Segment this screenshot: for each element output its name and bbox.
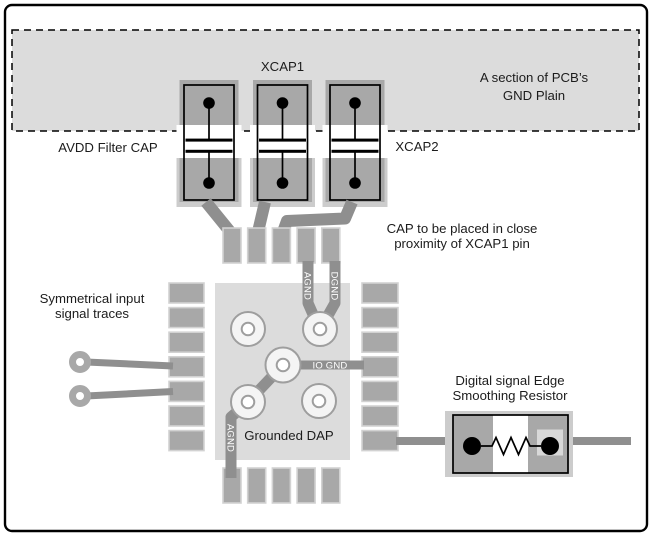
trace-label-io-gnd: IO GND (313, 361, 348, 372)
trace-cap2 (282, 202, 353, 236)
gnd-plane-label-line2: GND Plain (503, 88, 565, 103)
resistor-label-line1: Digital signal Edge (455, 373, 564, 388)
pcb-layout-figure: A section of PCB’s GND Plain (0, 0, 652, 536)
grounded-dap-label: Grounded DAP (244, 428, 334, 443)
input-trace-2 (86, 392, 173, 397)
ic-pad (362, 357, 398, 377)
cap-terminal-dot (349, 177, 361, 189)
ic-pads-right (362, 283, 398, 451)
cap-note-line1: CAP to be placed in close (387, 221, 538, 236)
ic-pad (297, 228, 315, 263)
resistor-label-line2: Smoothing Resistor (452, 388, 568, 403)
gnd-plane-label-line1: A section of PCB’s (480, 70, 589, 85)
ic-pads-left (169, 283, 204, 451)
ic-pad (297, 468, 315, 503)
capacitor-xcap-a (177, 80, 242, 207)
symmetrical-input-line2: signal traces (55, 306, 129, 321)
symmetrical-input-line1: Symmetrical input (40, 291, 145, 306)
cap-terminal-dot (277, 177, 289, 189)
ic-pad (169, 381, 204, 401)
cap-plate-bottom (186, 150, 233, 153)
edge-smoothing-resistor (396, 411, 631, 477)
ic-pad (169, 283, 204, 303)
ic-pad (169, 431, 204, 451)
via (231, 312, 265, 346)
ic-pad (169, 406, 204, 426)
cap-plate-top (259, 139, 306, 142)
input-traces (73, 355, 174, 404)
avdd-filter-cap-label: AVDD Filter CAP (58, 140, 158, 155)
ic-pad (169, 308, 204, 328)
cap-terminal-dot (349, 97, 361, 109)
cap-terminal-dot (277, 97, 289, 109)
cap-plate-bottom (332, 150, 379, 153)
resistor-terminal-dot (541, 437, 559, 455)
pcb-layout-canvas: A section of PCB’s GND Plain (0, 0, 652, 536)
xcap1-label: XCAP1 (261, 59, 304, 74)
resistor-terminal-dot (463, 437, 481, 455)
ic-pad (362, 283, 398, 303)
ic-pads-top (223, 228, 340, 263)
ic-pad (248, 228, 266, 263)
trace-label-agnd-top: AGND (302, 272, 313, 300)
capacitor-xcap2 (323, 80, 388, 207)
input-via-1 (73, 355, 88, 370)
ic-footprint: AGND DGND IO GND AGND Grounded DAP (169, 228, 398, 503)
ic-pad (362, 308, 398, 328)
ic-pad (169, 357, 204, 377)
ic-pad (272, 228, 290, 263)
trace-label-dgnd: DGND (329, 272, 340, 301)
cap-terminal-dot (203, 177, 215, 189)
cap-plate-bottom (259, 150, 306, 153)
xcap2-label: XCAP2 (395, 139, 438, 154)
ic-pad (362, 431, 398, 451)
cap-note-line2: proximity of XCAP1 pin (394, 236, 530, 251)
cap-plate-top (332, 139, 379, 142)
cap-plate-top (186, 139, 233, 142)
ic-pad (248, 468, 266, 503)
via (266, 348, 301, 383)
ic-pad (322, 468, 340, 503)
cap-terminal-dot (203, 97, 215, 109)
ic-pad (272, 468, 290, 503)
input-via-2 (73, 389, 88, 404)
ic-pad (223, 228, 241, 263)
input-trace-1 (86, 362, 173, 366)
ic-pad (362, 332, 398, 352)
ic-pad (169, 332, 204, 352)
via (302, 384, 336, 418)
capacitor-xcap1 (250, 80, 315, 207)
via (303, 312, 337, 346)
ic-pad (362, 381, 398, 401)
ic-pad (362, 406, 398, 426)
via (231, 385, 265, 419)
ic-pad (322, 228, 340, 263)
trace-label-agnd-bottom: AGND (225, 424, 236, 452)
ic-pads-bottom (223, 468, 340, 503)
